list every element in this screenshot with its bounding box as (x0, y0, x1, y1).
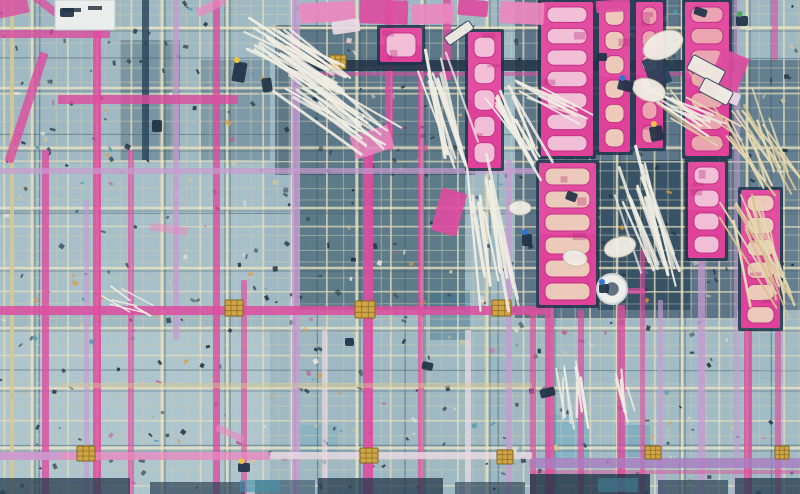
grain-overlay (0, 0, 800, 494)
construction-aerial-photo: Aerial photograph of a construction slab… (0, 0, 800, 494)
photo-canvas (0, 0, 800, 494)
